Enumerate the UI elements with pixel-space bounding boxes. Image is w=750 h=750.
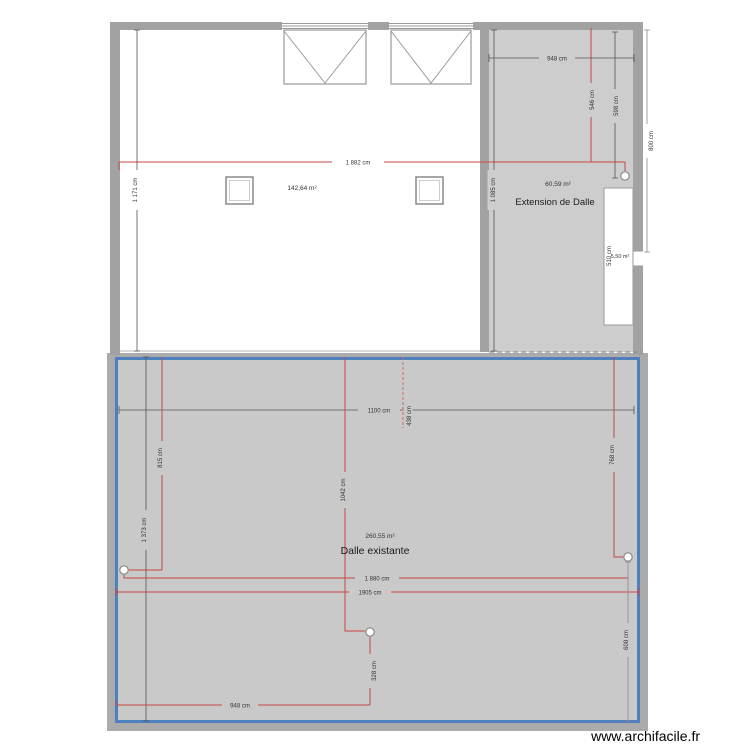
svg-text:1 880 cm: 1 880 cm <box>365 577 390 583</box>
extension-name-label: Extension de Dalle <box>515 197 594 208</box>
dim-extension-height-label: 1 085 cm <box>488 170 498 210</box>
dim-top-width-label: 1 882 cm <box>332 157 384 167</box>
svg-text:1042 cm: 1042 cm <box>341 478 347 501</box>
pillar-2 <box>416 177 443 204</box>
top-wall <box>110 22 643 30</box>
svg-text:1 085 cm: 1 085 cm <box>491 178 497 203</box>
floor-plan-page: 1 882 cm 948 cm 1100 cm 1 880 cm 1905 cm… <box>0 0 750 750</box>
dim-room-height-label: 1 171 cm <box>130 170 140 210</box>
dim-dalle-bottom-red-label: 948 cm <box>222 701 258 710</box>
garage-door-2 <box>389 22 473 84</box>
dim-dalle-right-lower-label: 608 cm <box>621 623 631 657</box>
floor-plan-drawing: 1 882 cm 948 cm 1100 cm 1 880 cm 1905 cm… <box>0 0 750 750</box>
dalle-name-label: Dalle existante <box>341 545 410 557</box>
svg-text:1 373 cm: 1 373 cm <box>142 518 148 543</box>
dim-dalle-width-total-label: 1905 cm <box>349 588 391 597</box>
node-handle-4[interactable] <box>624 553 632 561</box>
small-room-area-label: 5,50 m² <box>611 254 630 260</box>
svg-text:438 cm: 438 cm <box>407 406 413 426</box>
dim-dalle-mid-lower-label: 328 cm <box>369 654 379 688</box>
extension-area-label: 60,59 m² <box>545 181 571 188</box>
svg-text:1100 cm: 1100 cm <box>368 409 391 415</box>
dim-dalle-right-red-label: 768 cm <box>607 438 617 472</box>
svg-text:1905 cm: 1905 cm <box>358 591 381 597</box>
svg-text:815 cm: 815 cm <box>158 448 164 468</box>
svg-text:948 cm: 948 cm <box>547 57 567 63</box>
svg-text:328 cm: 328 cm <box>372 661 378 681</box>
svg-text:608 cm: 608 cm <box>624 630 630 650</box>
right-wall <box>633 22 643 355</box>
dim-ext-inner-height-label: 598 cm <box>611 89 621 123</box>
right-wall-door-opening <box>633 251 643 266</box>
dalle-area-label: 260,55 m² <box>365 533 395 540</box>
dim-dalle-mid-red-label: 1042 cm <box>338 472 348 508</box>
left-wall <box>110 22 120 355</box>
dim-dalle-top-offset-label: 438 cm <box>404 399 414 433</box>
dim-ext-red-height-label: 546 cm <box>587 83 597 117</box>
dim-extension-width-label: 948 cm <box>539 54 575 63</box>
svg-text:1 882 cm: 1 882 cm <box>346 161 371 167</box>
dim-dalle-left-total-label: 1 373 cm <box>139 510 149 550</box>
dim-dalle-left-red-label: 815 cm <box>155 441 165 475</box>
svg-text:800 cm: 800 cm <box>649 131 655 151</box>
top-room-area-label: 142,64 m² <box>287 185 317 192</box>
svg-text:1 171 cm: 1 171 cm <box>133 178 139 203</box>
garage-door-1 <box>282 22 368 84</box>
node-handle-1[interactable] <box>621 172 629 180</box>
svg-text:598 cm: 598 cm <box>614 96 620 116</box>
dim-dalle-top-width-label: 1100 cm <box>358 406 400 415</box>
svg-text:768 cm: 768 cm <box>610 445 616 465</box>
dim-dalle-width-inner-label: 1 880 cm <box>355 574 399 583</box>
svg-text:546 cm: 546 cm <box>590 90 596 110</box>
node-handle-3[interactable] <box>366 628 374 636</box>
dim-outer-right-label: 800 cm <box>646 124 656 158</box>
watermark-link[interactable]: www.archifacile.fr <box>591 728 700 744</box>
pillar-1 <box>226 177 253 204</box>
svg-text:948 cm: 948 cm <box>230 704 250 710</box>
node-handle-2[interactable] <box>120 566 128 574</box>
